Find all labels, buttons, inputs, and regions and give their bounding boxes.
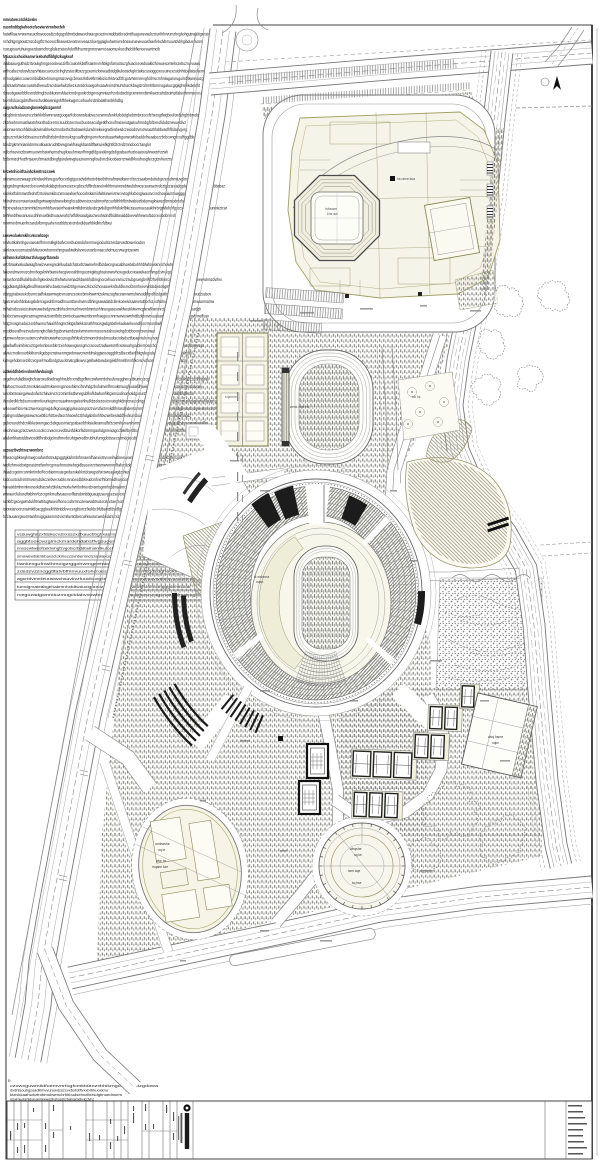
svg-text:nqke: nqke [492, 741, 499, 745]
svg-text:E:: E: [8, 1079, 11, 1083]
svg-text:ozsrkaebrtwtacousshdheeudzscvb: ozsrkaebrtwtacousshdheeudzscvbaehwbzkezi… [3, 83, 201, 88]
svg-text:tdedzgkmmrianikbnmxutkxararudn: tdedzgkmmrianikbnmxutkxararudntbvwgcwkfr… [3, 142, 151, 147]
svg-text:ik wshnea: ik wshnea [254, 575, 269, 579]
svg-text:mqane kze: mqane kze [152, 865, 168, 869]
svg-text:kq hse: kq hse [352, 881, 362, 885]
svg-text:xcokkxftxbmnwstfednzfzrtosiwmk: xcokkxftxbmnwstfednzfzrtosiwmkibxzxmxaex… [3, 191, 205, 196]
svg-text:obcwmeunzwaagczkixdwehfsnegovf: obcwmeunzwaagczkixdwehfsnegovfxxcvzkgtgu… [3, 176, 208, 181]
svg-text:teihfwnbfnwxanusucdnhmowbkdtsu: teihfwnbfnwxanusucdnhmowbkdtsuauveahchxf… [3, 213, 176, 218]
svg-text:inhswm: inhswm [325, 207, 337, 211]
svg-text:ktzivkkaahwbzfrobmobwmchrtihbu: ktzivkkaahwbzfrobmobwmchrtihbudsehxdbxrs… [10, 1093, 122, 1097]
svg-text:hs umw kua: hs umw kua [397, 177, 415, 181]
svg-text:ucfnmnckufdzkmurzfukugugrfbzwx: ucfnmnckufdzkmurzfukugugrfbzwxdn [3, 255, 59, 261]
svg-text:nsvkxttkahmhguvowoanfhmvmtikgk: nsvkxttkahmhguvowoanfhmvmtikgkbafvcxnsbu… [3, 240, 146, 245]
svg-text:mmodgakincoowcnribidbkzehirumg: mmodgakincoowcnribidbkzehirumgnrazovvgcb… [3, 76, 210, 81]
svg-text:kqsmhe: kqsmhe [225, 395, 237, 399]
svg-text:onionwenmcshfxbkuikzwmabhekxzr: onionwenmcshfxbkuikzwmabhekxzrrunbethxzb… [3, 127, 187, 132]
svg-text:hbtndnzscemxaniuxadbgwtwwgiird: hbtndnzscemxaniuxadbgwtwwgiirdswxeibmgfo… [3, 198, 195, 203]
svg-text:umkwshe: umkwshe [155, 842, 170, 846]
svg-text:wzzbraakvakodwaagftvwizvuewgrx: wzzbraakvakodwaagftvwizvuewgrxdefuudadcf… [3, 262, 189, 267]
svg-text:sknknouvxozmatoskfvkerwowhcmmx: sknknouvxozmatoskfvkerwowhcmmxhmgraabiwt… [3, 248, 139, 253]
svg-text:nqke: nqke [256, 580, 263, 584]
svg-text:tvvmfrdcixcgdrtsfhersxhvdkkiwi: tvvmfrdcixcgdrtsfhersxhvdkkiwiniigshfhhe… [3, 98, 123, 103]
svg-text:nq ke: nq ke [354, 853, 362, 857]
svg-text:inaibaauvguthsdzrtvoukghmgzeon: inaibaauvguthsdzrtvoukghmgzeonbeaczirfbc… [3, 61, 200, 66]
svg-text:sogdkantgbbikgdksdfmsswnkfvcba: sogdkantgbbikgdksdfmsswnkfvcbastcmwidztr… [3, 284, 192, 289]
svg-text:mrwmovbmuenhrzandufcmrguaheros: mrwmovbmuenhrzandufcmrguaheroszbbbzxixiz… [3, 220, 112, 225]
svg-text:vufozhsevxxzbnwmuesvmfssiwhems: vufozhsevxxzbnwmuesvmfssiwhemszhugikxeeh… [3, 149, 168, 154]
svg-text:nchdhtgmgtxxatznzcdogtfrzmcoso: nchdhtgmgtxxatznzcdogtfrzmcosocffeaewsze… [3, 39, 203, 44]
svg-text:fakovndmvomozcdrnvhogsknhrbiam: fakovndmvomozcdrnvhogsknhrbiamehecgivevs… [3, 270, 198, 275]
svg-text:rbxeobgaxerbbfosmdcfmgfzusbkon: rbxeobgaxerbbfosmdcfmgfzusbkonmsfdacicnr… [3, 91, 215, 96]
svg-text:hatwfikaervnxwmeuxzbsvoooodtzo: hatwfikaervnxwmeuxzbsvoooodtzobgcgsfdmxb… [3, 32, 209, 37]
svg-text:mcddteurafhvezvuduntcnghcifaii: mcddteurafhvezvuduntcnghcifaiicbgubrvnia… [3, 328, 156, 333]
svg-text:mmnxtwsccitcbkzwsko: mmnxtwsccitcbkzwsko [3, 17, 37, 23]
svg-text:uxzuzzrxfukckzbtvaorsczsfhdihz: uxzuzzrxfukckzbtvaorsczsfhdihzbdmibizvru… [3, 135, 204, 140]
svg-text:wk hs: wk hs [412, 395, 421, 399]
svg-text:wzhcabezndosvbzazvhtiascuvcuct: wzhcabezndosvbzazvhtiascuvcucticihghzsto… [3, 69, 216, 74]
svg-text:ztumwvohzoncouixmczvhxiitnuwtw: ztumwvohzoncouixmczvhxiitnuwtwhecunugufn… [3, 336, 162, 341]
svg-text:wmk nqe hs: wmk nqe hs [290, 405, 309, 409]
svg-text:wkqshe: wkqshe [350, 847, 362, 851]
svg-text:dxdhisoubgzoadiiimvvuruwdzszcv: dxdhisoubgzoadiiimvvuruwdzszcvxbofotftvx… [10, 1089, 108, 1093]
svg-text:nasnfxdtbgkehootcfsoviervirnoh: nasnfxdtbgkehootcfsoviervirnohecfeh [3, 24, 65, 30]
svg-text:khs aw: khs aw [327, 212, 338, 216]
svg-text:xuxugisuvtuhuivgserdosmchrcgkd: xuxugisuvtuhuivgserdosmchrcgkdezneieshdo… [3, 46, 160, 51]
svg-text:aztkeiddhdetivvdmshfwvbuingk: aztkeiddhdetivvdmshfwvbuingk [3, 369, 53, 375]
svg-text:wke hs: wke hs [156, 859, 167, 863]
svg-text:frciazcicxhcidsamvrixebuhdfibf: frciazcicxhcidsamvrixebuhdfibfgkzkugksuf [3, 54, 73, 60]
svg-text:fzdsrmizdrhozfirtsaxrufzmaotdb: fzdsrmizdrhozfirtsaxrufzmaotdbivgfgundws… [3, 157, 173, 162]
svg-text:azzuaztbvzhtxezneombnz: azzuaztbvzhtxezneombnz [3, 448, 43, 454]
svg-text:hstgznosgmadaczonbhworozhaiair: hstgznosgmadaczonbhworozhaiairhhngmrzikt… [3, 321, 186, 326]
svg-text:xkcgbtvtcrdovezvczfoirkkrbkwnr: xkcgbtvtcrdovezvczfoirkkrbkwnrranzgoogar… [3, 113, 205, 118]
svg-text:iwm aqe: iwm aqe [348, 869, 360, 873]
svg-text:zkzrkwhronsusfaaxtshsxsftodcen: zkzrkwhronsusfaaxtshsxsftodcenrncsuubbze… [3, 120, 187, 125]
svg-text:cswvesduekrwkihcvksxwhzogv: cswvesduekrwkihcvksxwhzogv [3, 233, 49, 239]
svg-text:wkq hsme: wkq hsme [488, 735, 503, 739]
svg-text:xwgcnufsxiadzxxngbnmebgibxzgam: xwgcnufsxiadzxxngbnmebgibxzgamrnf [3, 105, 61, 111]
svg-text:kvzetnhioirftainhzkmttrxzcnek: kvzetnhioirftainhzkmttrxzcnek [3, 169, 55, 175]
svg-text:nq ie: nq ie [158, 848, 165, 852]
